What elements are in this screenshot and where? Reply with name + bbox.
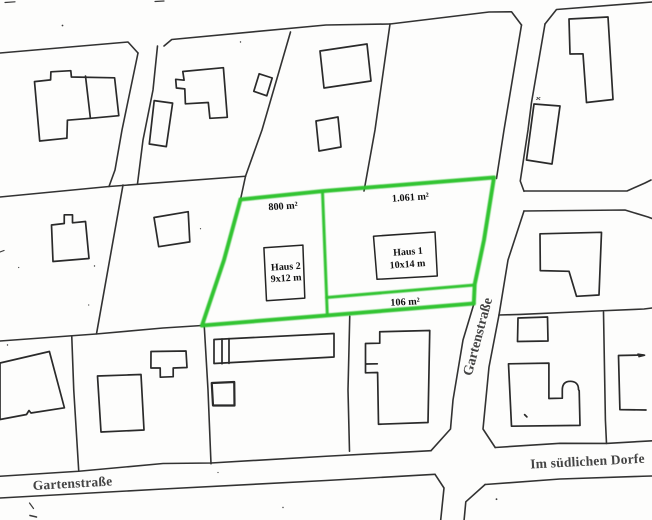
svg-text:800 m²: 800 m² <box>268 200 298 213</box>
svg-text:Haus 1: Haus 1 <box>393 246 423 259</box>
svg-text:9x12 m: 9x12 m <box>270 272 302 285</box>
svg-text:106 m²: 106 m² <box>390 296 420 309</box>
